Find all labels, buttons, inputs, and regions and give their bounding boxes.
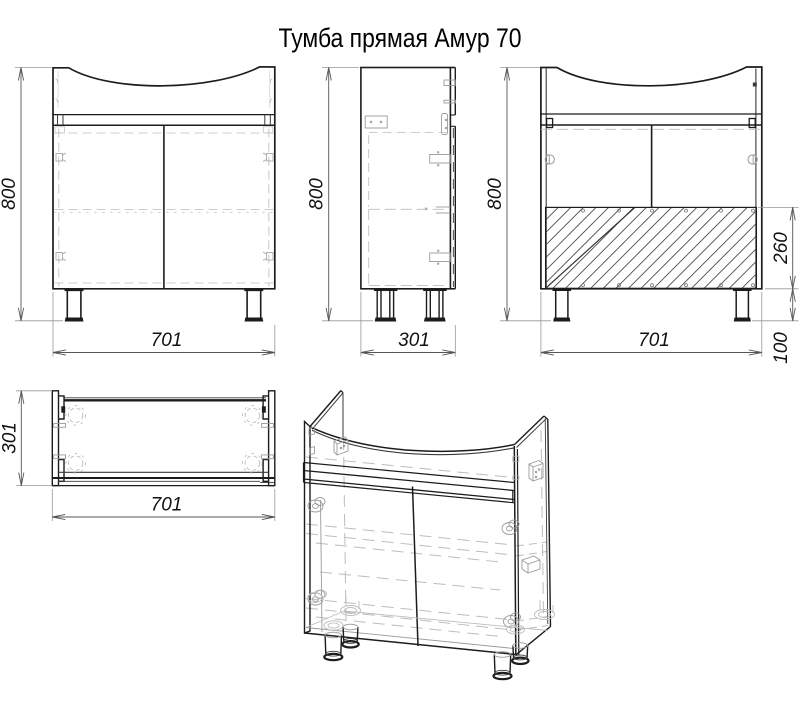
svg-text:701: 701 bbox=[151, 330, 183, 351]
svg-text:100: 100 bbox=[771, 332, 792, 364]
svg-text:701: 701 bbox=[151, 495, 183, 516]
svg-text:800: 800 bbox=[485, 178, 506, 210]
svg-text:260: 260 bbox=[771, 232, 792, 265]
svg-text:Тумба прямая Амур 70: Тумба прямая Амур 70 bbox=[279, 23, 522, 53]
svg-text:800: 800 bbox=[307, 178, 328, 210]
svg-text:301: 301 bbox=[398, 330, 430, 351]
svg-text:800: 800 bbox=[0, 178, 20, 210]
svg-text:301: 301 bbox=[0, 422, 20, 454]
svg-text:701: 701 bbox=[638, 330, 670, 351]
